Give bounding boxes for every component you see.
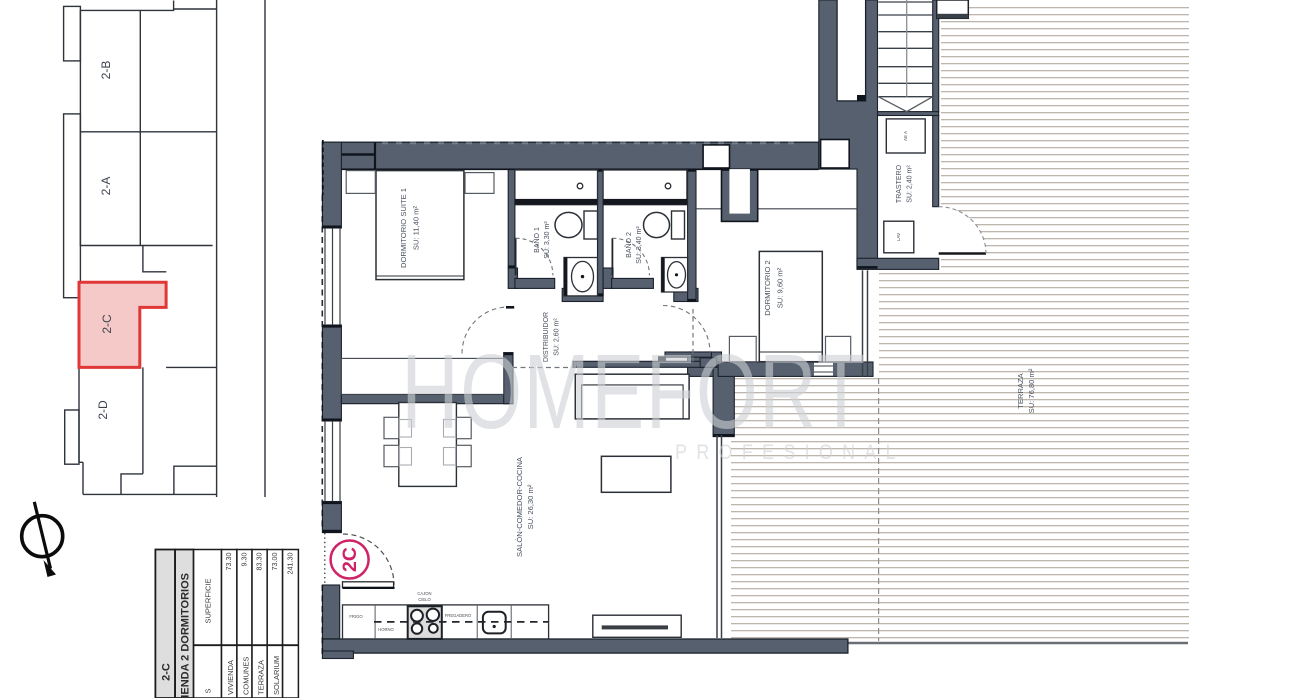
svg-text:HORNO: HORNO <box>378 627 394 632</box>
svg-text:SALÓN-COMEDOR-COCINA: SALÓN-COMEDOR-COCINA <box>515 456 524 557</box>
svg-text:SU: 3,40 m²: SU: 3,40 m² <box>636 226 643 264</box>
svg-text:FRIGO: FRIGO <box>349 614 363 619</box>
svg-text:HOMEFORT: HOMEFORT <box>401 332 866 451</box>
svg-text:SU: 3,30 m²: SU: 3,30 m² <box>544 221 551 259</box>
svg-text:BAÑO 2: BAÑO 2 <box>624 232 633 258</box>
svg-text:2-B: 2-B <box>99 61 113 80</box>
svg-text:LAV: LAV <box>896 233 901 241</box>
svg-text:DORMITORIO SUITE 1: DORMITORIO SUITE 1 <box>399 188 408 268</box>
svg-text:2-C: 2-C <box>100 314 114 334</box>
svg-text:SU: 26,30 m²: SU: 26,30 m² <box>526 484 535 529</box>
svg-text:COMUNES: COMUNES <box>241 657 250 695</box>
svg-text:TRASTERO: TRASTERO <box>896 164 903 203</box>
svg-text:S: S <box>203 688 212 693</box>
svg-text:SU: 9,60 m²: SU: 9,60 m² <box>776 267 785 308</box>
svg-text:73.30: 73.30 <box>224 553 233 571</box>
svg-text:CAJON: CAJON <box>417 591 431 596</box>
svg-text:FREGADERO: FREGADERO <box>445 613 472 618</box>
svg-text:83.30: 83.30 <box>255 553 264 571</box>
svg-text:SU: 2,40 m²: SU: 2,40 m² <box>906 165 913 203</box>
svg-text:9.30: 9.30 <box>239 553 248 567</box>
svg-text:SUPERFICIE: SUPERFICIE <box>203 578 212 623</box>
svg-text:CIELO: CIELO <box>418 597 431 602</box>
svg-text:PROFESIONAL: PROFESIONAL <box>675 441 905 465</box>
svg-text:TERRAZA: TERRAZA <box>257 660 266 695</box>
svg-text:SU: 11,40 m²: SU: 11,40 m² <box>412 205 421 250</box>
svg-text:BAÑO 1: BAÑO 1 <box>532 227 541 253</box>
svg-text:241.30: 241.30 <box>285 552 294 574</box>
svg-text:AE A: AE A <box>903 131 908 141</box>
svg-text:2-A: 2-A <box>99 177 113 196</box>
svg-text:2-C: 2-C <box>160 663 172 681</box>
svg-text:2C: 2C <box>339 547 361 572</box>
svg-text:DORMITORIO 2: DORMITORIO 2 <box>763 260 772 316</box>
svg-text:TERRAZA: TERRAZA <box>1016 372 1025 408</box>
svg-text:2-D: 2-D <box>96 400 110 420</box>
svg-text:SU: 76,80 m²: SU: 76,80 m² <box>1027 368 1036 413</box>
svg-text:VIVIENDA: VIVIENDA <box>226 660 235 695</box>
svg-text:VIVIENDA 2 DORMITORIOS: VIVIENDA 2 DORMITORIOS <box>179 573 191 698</box>
svg-text:SOLARIUM: SOLARIUM <box>272 656 281 695</box>
svg-text:73.00: 73.00 <box>270 553 279 571</box>
